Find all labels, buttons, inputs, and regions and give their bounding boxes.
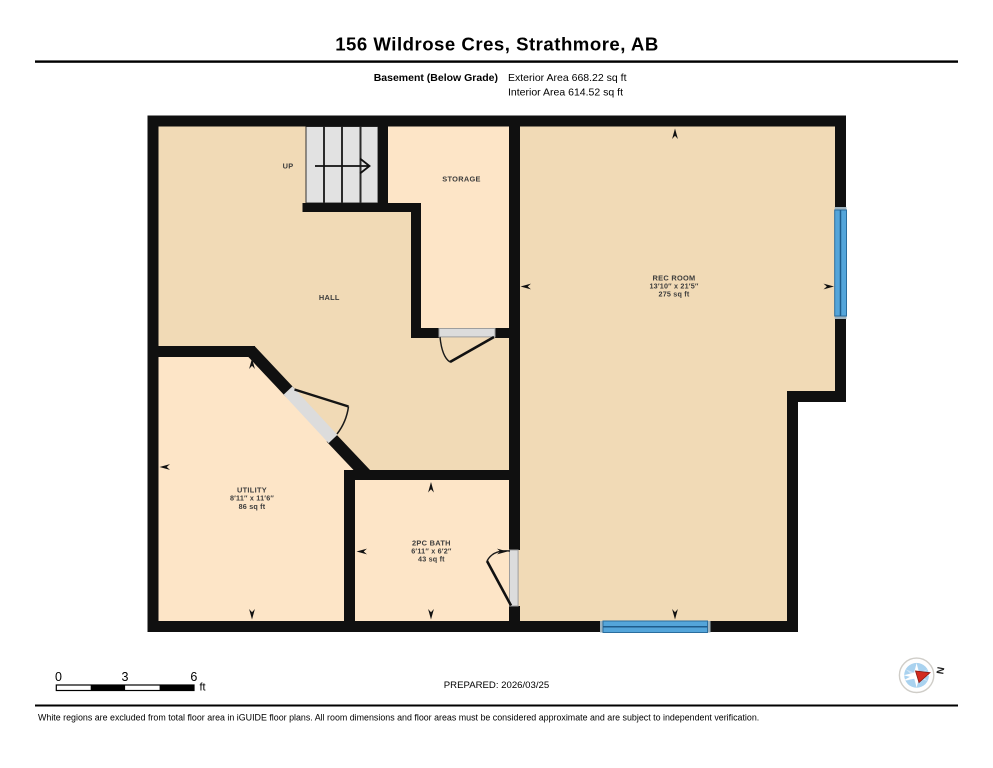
svg-text:White regions are excluded fro: White regions are excluded from total fl… <box>38 713 759 723</box>
svg-text:UP: UP <box>283 162 294 171</box>
svg-text:STORAGE: STORAGE <box>442 175 481 184</box>
svg-text:Interior Area 614.52 sq ft: Interior Area 614.52 sq ft <box>508 87 623 99</box>
svg-text:3: 3 <box>122 670 129 684</box>
svg-text:86 sq ft: 86 sq ft <box>239 502 266 511</box>
svg-text:Exterior Area 668.22 sq ft: Exterior Area 668.22 sq ft <box>508 72 627 84</box>
svg-text:156 Wildrose Cres, Strathmore,: 156 Wildrose Cres, Strathmore, AB <box>335 34 659 55</box>
svg-text:275 sq ft: 275 sq ft <box>659 290 690 299</box>
svg-text:0: 0 <box>55 670 62 684</box>
svg-text:ft: ft <box>200 682 206 694</box>
svg-text:43 sq ft: 43 sq ft <box>418 555 445 564</box>
svg-text:Basement (Below Grade): Basement (Below Grade) <box>374 72 498 84</box>
svg-text:PREPARED: 2026/03/25: PREPARED: 2026/03/25 <box>444 680 549 691</box>
svg-text:HALL: HALL <box>319 293 340 302</box>
svg-text:6: 6 <box>190 670 197 684</box>
